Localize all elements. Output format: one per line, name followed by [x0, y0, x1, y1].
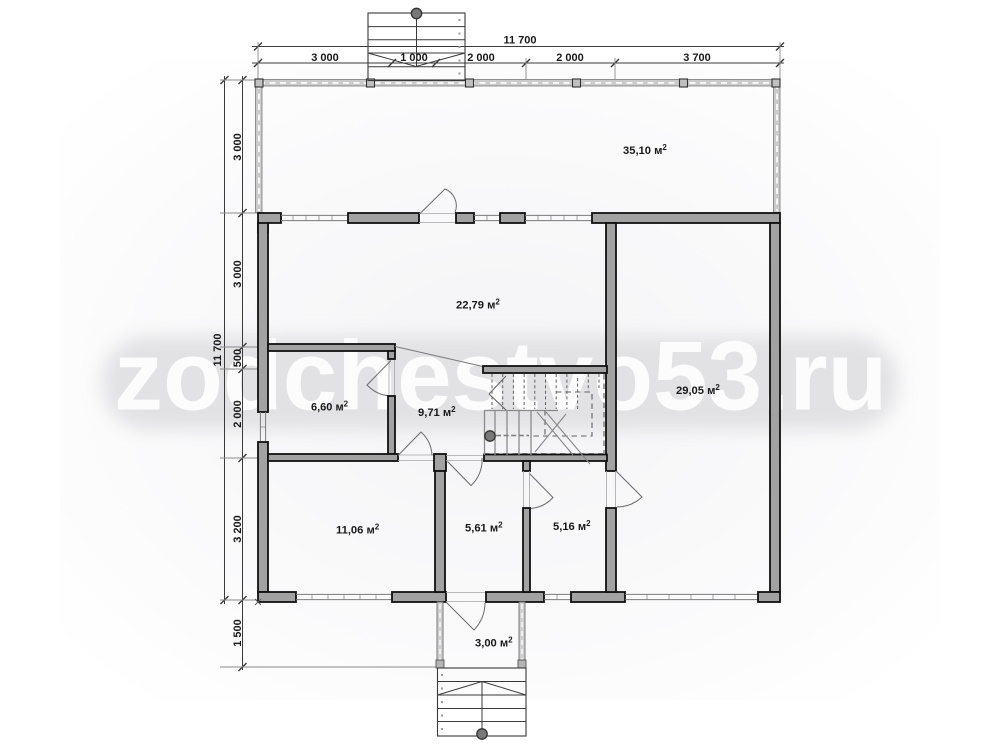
svg-text:22,79 м2: 22,79 м2 — [456, 298, 500, 312]
svg-text:35,10 м2: 35,10 м2 — [623, 143, 667, 157]
svg-text:500: 500 — [232, 349, 244, 367]
svg-text:3 000: 3 000 — [311, 52, 339, 64]
svg-text:6,60 м2: 6,60 м2 — [311, 400, 349, 414]
svg-text:3 200: 3 200 — [232, 515, 244, 543]
svg-text:2 000: 2 000 — [467, 52, 495, 64]
svg-text:3 700: 3 700 — [683, 52, 711, 64]
svg-text:2 000: 2 000 — [556, 52, 584, 64]
svg-text:3,00 м2: 3,00 м2 — [475, 636, 513, 650]
svg-text:3 000: 3 000 — [232, 260, 244, 288]
svg-text:29,05 м2: 29,05 м2 — [676, 383, 720, 397]
svg-text:5,16 м2: 5,16 м2 — [553, 519, 591, 533]
svg-text:11 700: 11 700 — [503, 35, 536, 47]
svg-text:9,71 м2: 9,71 м2 — [418, 405, 456, 419]
svg-text:3 000: 3 000 — [232, 133, 244, 161]
svg-text:11 700: 11 700 — [212, 333, 224, 366]
svg-text:1 000: 1 000 — [400, 52, 428, 64]
svg-text:11,06 м2: 11,06 м2 — [336, 523, 380, 537]
svg-text:5,61 м2: 5,61 м2 — [465, 521, 503, 535]
svg-text:1 500: 1 500 — [232, 619, 244, 647]
svg-text:2 000: 2 000 — [232, 400, 244, 428]
